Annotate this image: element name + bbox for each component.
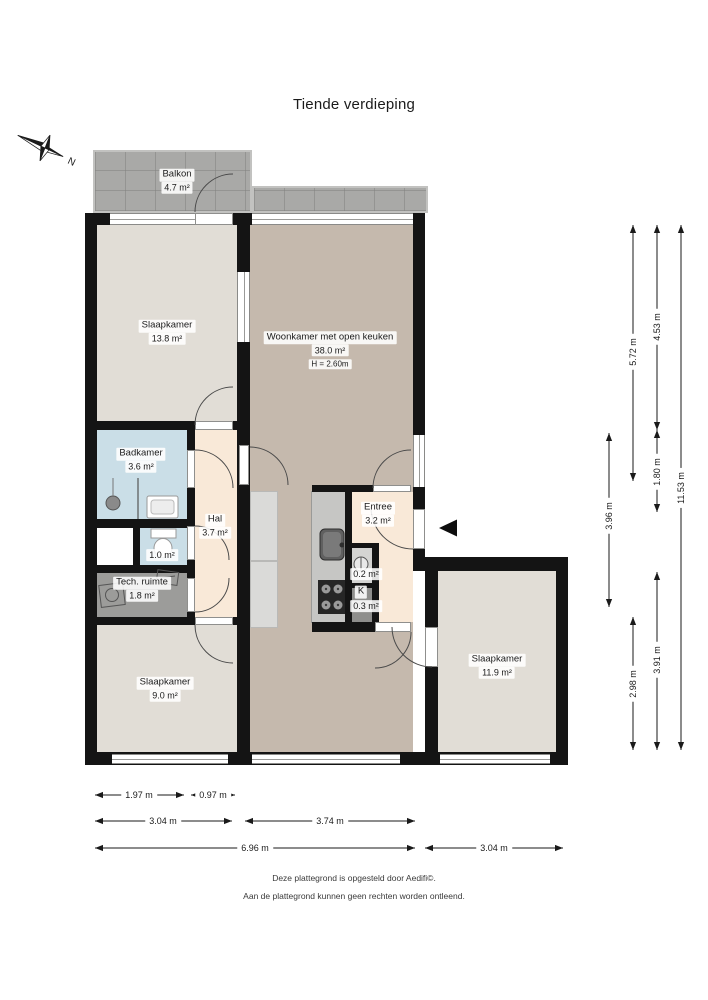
room-area: 13.8 m² [149, 333, 186, 345]
dim-right-4-53: 4.53 m [652, 309, 662, 345]
entrance-arrow-icon [439, 520, 457, 537]
bathroom-fixtures [106, 478, 178, 519]
room-area: 9.0 m² [149, 690, 181, 702]
room-label-badkamer: Badkamer 3.6 m² [116, 448, 165, 475]
room-label-kast-area: 0.3 m² [350, 600, 382, 614]
dim-right-2-98: 2.98 m [628, 666, 638, 702]
room-name: Balkon [159, 169, 194, 182]
room-label-woonkamer: Woonkamer met open keuken 38.0 m² H = 2.… [264, 331, 397, 370]
room-name: Slaapkamer [139, 320, 196, 333]
room-label-tech-ruimte: Tech. ruimte 1.8 m² [113, 577, 171, 604]
room-label-kast: K [355, 586, 367, 599]
room-name: Tech. ruimte [113, 577, 171, 590]
footer-line-1: Deze plattegrond is opgesteld door Aedif… [0, 873, 708, 883]
room-name: Woonkamer met open keuken [264, 331, 397, 344]
room-label-slaapkamer-3: Slaapkamer 11.9 m² [469, 654, 526, 681]
compass-icon: N [18, 135, 77, 169]
room-area: 11.9 m² [479, 667, 515, 679]
dim-right-3-91: 3.91 m [652, 642, 662, 678]
dim-bottom-6-96: 6.96 m [237, 843, 273, 853]
room-label-slaapkamer-1: Slaapkamer 13.8 m² [139, 320, 196, 347]
room-label-entree: Entree 3.2 m² [361, 502, 395, 529]
dim-right-5-72: 5.72 m [628, 334, 638, 370]
dim-bottom-3-04-right: 3.04 m [476, 843, 512, 853]
floorplan-canvas: Tiende verdieping [0, 0, 708, 1000]
room-area: 38.0 m² [312, 344, 349, 356]
dim-right-11-53: 11.53 m [676, 468, 686, 508]
dimension-lines [95, 225, 681, 848]
dim-right-1-80: 1.80 m [652, 454, 662, 490]
room-area: 1.0 m² [146, 549, 178, 561]
room-name: Slaapkamer [137, 677, 194, 690]
room-area: 3.2 m² [362, 515, 394, 527]
dim-bottom-0-97: 0.97 m [195, 790, 231, 800]
room-label-slaapkamer-2: Slaapkamer 9.0 m² [137, 677, 194, 704]
room-area: 3.6 m² [125, 461, 157, 473]
kitchen-fixtures [318, 529, 345, 614]
room-name: Hal [205, 514, 225, 527]
room-label-balkon: Balkon 4.7 m² [159, 169, 194, 196]
dim-bottom-1-97: 1.97 m [121, 790, 157, 800]
room-name: Entree [361, 502, 395, 515]
dim-bottom-3-74: 3.74 m [312, 816, 348, 826]
room-label-toilet: 1.0 m² [146, 549, 178, 563]
room-area: 3.7 m² [199, 527, 231, 539]
footer-line-2: Aan de plattegrond kunnen geen rechten w… [0, 891, 708, 901]
dim-right-3-96: 3.96 m [604, 498, 614, 534]
room-name: K [355, 586, 367, 599]
room-area: 1.8 m² [126, 590, 158, 602]
room-name: Slaapkamer [469, 654, 526, 667]
room-label-meterkast: 0.2 m² [350, 568, 382, 582]
room-area: 0.2 m² [350, 568, 382, 580]
room-ceiling-height: H = 2.60m [308, 359, 351, 370]
plan-overlay: N [0, 0, 708, 1000]
room-area: 0.3 m² [350, 600, 382, 612]
stove-icon [318, 580, 345, 614]
dim-bottom-3-04: 3.04 m [145, 816, 181, 826]
room-label-hal: Hal 3.7 m² [199, 514, 231, 541]
room-name: Badkamer [116, 448, 165, 461]
room-area: 4.7 m² [161, 182, 193, 194]
compass-north-label: N [66, 156, 77, 169]
door-arcs [195, 174, 432, 668]
